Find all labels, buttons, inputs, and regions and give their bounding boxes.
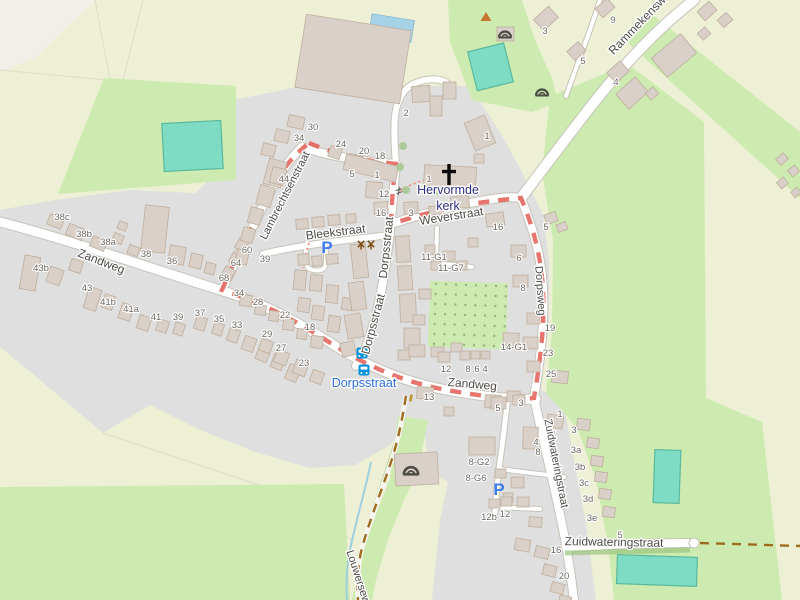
bunker-icon xyxy=(499,32,512,38)
house-number: 23 xyxy=(299,358,310,369)
house-number: 11-G1 xyxy=(421,252,447,263)
house-number: 24 xyxy=(336,139,347,150)
house-number: 12 xyxy=(441,364,452,375)
building xyxy=(295,14,411,104)
house-number: 1 xyxy=(374,170,379,181)
building xyxy=(293,270,307,291)
house-number: 30 xyxy=(308,122,319,133)
pitch xyxy=(162,120,223,171)
house-number: 5 xyxy=(495,403,500,414)
house-number: 23 xyxy=(543,348,554,359)
house-number: 9 xyxy=(610,15,615,26)
house-number: 4 xyxy=(482,364,487,375)
road-end xyxy=(690,539,699,548)
pitch xyxy=(653,450,681,504)
house-number: 8 xyxy=(520,283,525,294)
building xyxy=(481,351,490,359)
house-number: 8 xyxy=(535,447,540,458)
building xyxy=(438,352,450,362)
building xyxy=(474,154,484,163)
building xyxy=(430,96,442,116)
building xyxy=(517,497,529,507)
house-number: 34 xyxy=(294,133,305,144)
parking-icon: P xyxy=(321,238,332,257)
house-number: 27 xyxy=(276,343,287,354)
house-number: 3 xyxy=(542,26,547,37)
house-number: 41a xyxy=(123,304,140,315)
building xyxy=(311,305,325,321)
house-number: 8 xyxy=(465,364,470,375)
building xyxy=(312,256,323,267)
house-number: 43b xyxy=(33,263,49,274)
house-number: 41b xyxy=(100,297,116,308)
building xyxy=(411,85,430,102)
house-number: 5 xyxy=(349,169,354,180)
house-number: 3 xyxy=(408,208,413,219)
building xyxy=(298,254,310,266)
house-number: 39 xyxy=(173,312,184,323)
house-number: 5 xyxy=(543,222,548,233)
house-number: 3c xyxy=(579,478,589,489)
house-number: 1 xyxy=(557,409,562,420)
house-number: 22 xyxy=(280,310,291,321)
building xyxy=(261,143,277,158)
bus-stop-label: Dorpsstraat xyxy=(332,376,397,390)
church-label-line2: kerk xyxy=(436,199,460,213)
building xyxy=(409,345,425,357)
building xyxy=(397,266,413,291)
orchard xyxy=(428,281,508,350)
house-number: 12 xyxy=(379,189,390,200)
house-number: 13 xyxy=(424,392,435,403)
building xyxy=(489,499,500,508)
building xyxy=(469,437,495,455)
house-number: 1 xyxy=(484,131,489,142)
house-number: 5 xyxy=(580,56,585,67)
map-viewport[interactable]: PP≠ ZandwegLambrechtsenstraatBleekstraat… xyxy=(0,0,800,600)
building xyxy=(576,418,590,431)
building xyxy=(340,341,357,358)
pitch xyxy=(617,555,698,587)
building xyxy=(511,477,524,488)
house-number: 64 xyxy=(231,258,242,269)
building xyxy=(141,205,170,253)
house-number: 28 xyxy=(253,297,264,308)
house-number: 35 xyxy=(214,314,225,325)
house-number: 68 xyxy=(219,273,230,284)
house-number: 38a xyxy=(100,237,117,248)
house-number: 8-G6 xyxy=(465,473,486,484)
house-number: 25 xyxy=(546,369,557,380)
house-number: 19 xyxy=(545,323,556,334)
building xyxy=(444,407,454,416)
building xyxy=(594,471,607,483)
house-number: 18 xyxy=(375,151,386,162)
building xyxy=(586,437,599,449)
building xyxy=(590,455,603,467)
building xyxy=(468,238,478,247)
building xyxy=(514,538,531,552)
building xyxy=(460,351,470,360)
house-number: 16 xyxy=(493,222,504,233)
hedge-line xyxy=(565,550,690,553)
building xyxy=(268,310,279,321)
bunker-icon xyxy=(403,467,419,474)
house-number: 6 xyxy=(516,253,521,264)
house-number: 2 xyxy=(403,108,408,119)
bus-stop-icon xyxy=(359,365,370,376)
house-number: 39 xyxy=(260,254,271,265)
house-number: 60 xyxy=(242,245,253,256)
house-number: 16 xyxy=(551,545,562,556)
house-number: 38 xyxy=(141,249,152,260)
tree-icon xyxy=(399,142,407,150)
house-number: 36 xyxy=(167,256,178,267)
building xyxy=(443,82,456,99)
house-number: 3a xyxy=(571,445,582,456)
house-number: 1 xyxy=(426,174,431,185)
grass-field-bottomleft xyxy=(0,484,350,600)
house-number: 3 xyxy=(518,398,523,409)
parking-icon: P xyxy=(493,480,504,499)
tree-icon xyxy=(396,163,404,171)
building xyxy=(398,350,410,360)
house-number: 4 xyxy=(613,77,618,88)
house-number: 18 xyxy=(305,322,316,333)
building xyxy=(274,129,290,144)
house-number: 41 xyxy=(151,312,162,323)
building xyxy=(602,506,615,518)
house-number: 16 xyxy=(376,208,387,219)
house-number: 8-G2 xyxy=(468,457,489,468)
building xyxy=(297,297,311,313)
house-number: 43 xyxy=(82,283,93,294)
house-number: 6 xyxy=(474,364,479,375)
house-number: 34 xyxy=(234,288,245,299)
building xyxy=(189,253,204,269)
house-number: 38b xyxy=(76,229,92,240)
house-number: 3e xyxy=(587,513,598,524)
building xyxy=(529,517,543,528)
building xyxy=(527,361,540,372)
map-canvas[interactable]: PP≠ ZandwegLambrechtsenstraatBleekstraat… xyxy=(0,0,800,600)
building xyxy=(325,285,339,304)
building xyxy=(495,469,506,478)
house-number: 37 xyxy=(195,308,206,319)
building xyxy=(419,289,431,299)
house-number: 38c xyxy=(54,212,70,223)
house-number: 3b xyxy=(575,462,586,473)
building xyxy=(310,335,324,349)
house-number: 12b xyxy=(481,512,497,523)
building xyxy=(471,351,480,359)
house-number: 3d xyxy=(583,494,594,505)
house-number: 12 xyxy=(500,509,511,520)
building xyxy=(327,315,341,333)
street-label: Zuidwateringstraat xyxy=(565,534,665,550)
building xyxy=(598,488,611,500)
church-label-line1: Hervormde xyxy=(417,183,479,197)
house-number: 20 xyxy=(359,146,370,157)
house-number: 33 xyxy=(232,320,243,331)
building xyxy=(204,262,216,275)
building xyxy=(350,243,368,278)
house-number: 44 xyxy=(279,174,290,185)
house-number: 20 xyxy=(559,571,570,582)
bunker-icon xyxy=(536,90,549,96)
building xyxy=(395,236,411,263)
house-number: 11-G7 xyxy=(438,263,464,274)
building xyxy=(413,315,425,325)
house-number: 3 xyxy=(571,425,576,436)
house-number: 5 xyxy=(617,530,622,541)
house-number: 14-G1 xyxy=(501,342,527,353)
house-number: 29 xyxy=(262,329,273,340)
building xyxy=(309,275,322,292)
tree-icon xyxy=(402,186,410,194)
